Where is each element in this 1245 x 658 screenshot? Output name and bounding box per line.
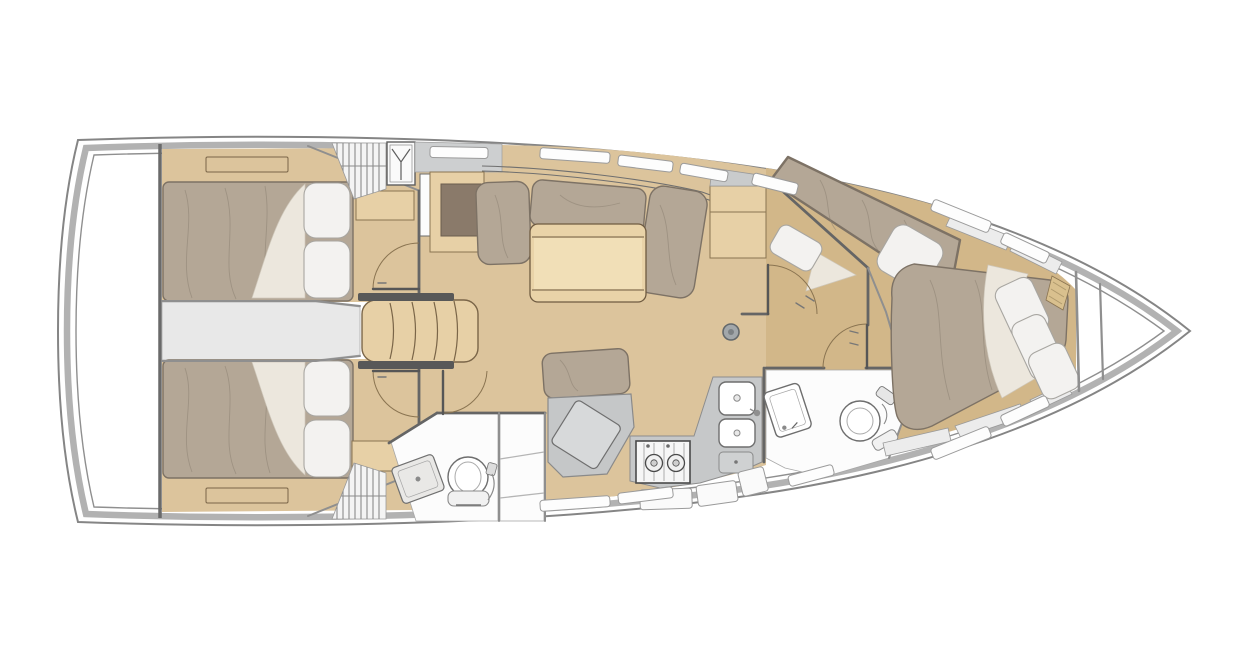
boat-floor-plan xyxy=(0,0,1245,658)
companionway-steps xyxy=(362,300,478,362)
nav-bench-cushion xyxy=(542,348,631,399)
salon-cabinet xyxy=(710,186,766,258)
stove xyxy=(636,441,690,483)
settee-cushion-left xyxy=(476,181,532,265)
drain-icon xyxy=(734,430,740,436)
saloon-table[interactable] xyxy=(530,224,646,302)
shower-stall xyxy=(500,413,544,521)
sliding-door[interactable] xyxy=(420,174,431,236)
hull-window xyxy=(430,146,488,158)
chart-locker-panel xyxy=(441,184,481,236)
step-frame-top xyxy=(358,293,454,301)
mast-post xyxy=(723,324,739,340)
engine-walkway xyxy=(162,302,360,360)
hanging-locker xyxy=(387,142,415,185)
toilet xyxy=(448,457,489,506)
pillow xyxy=(304,420,350,477)
drain-icon xyxy=(734,395,740,401)
pillow xyxy=(304,361,350,416)
pillow xyxy=(304,183,350,238)
floor-plan-canvas xyxy=(0,0,1245,658)
step-frame-bottom xyxy=(358,361,454,369)
pillow xyxy=(304,241,350,298)
